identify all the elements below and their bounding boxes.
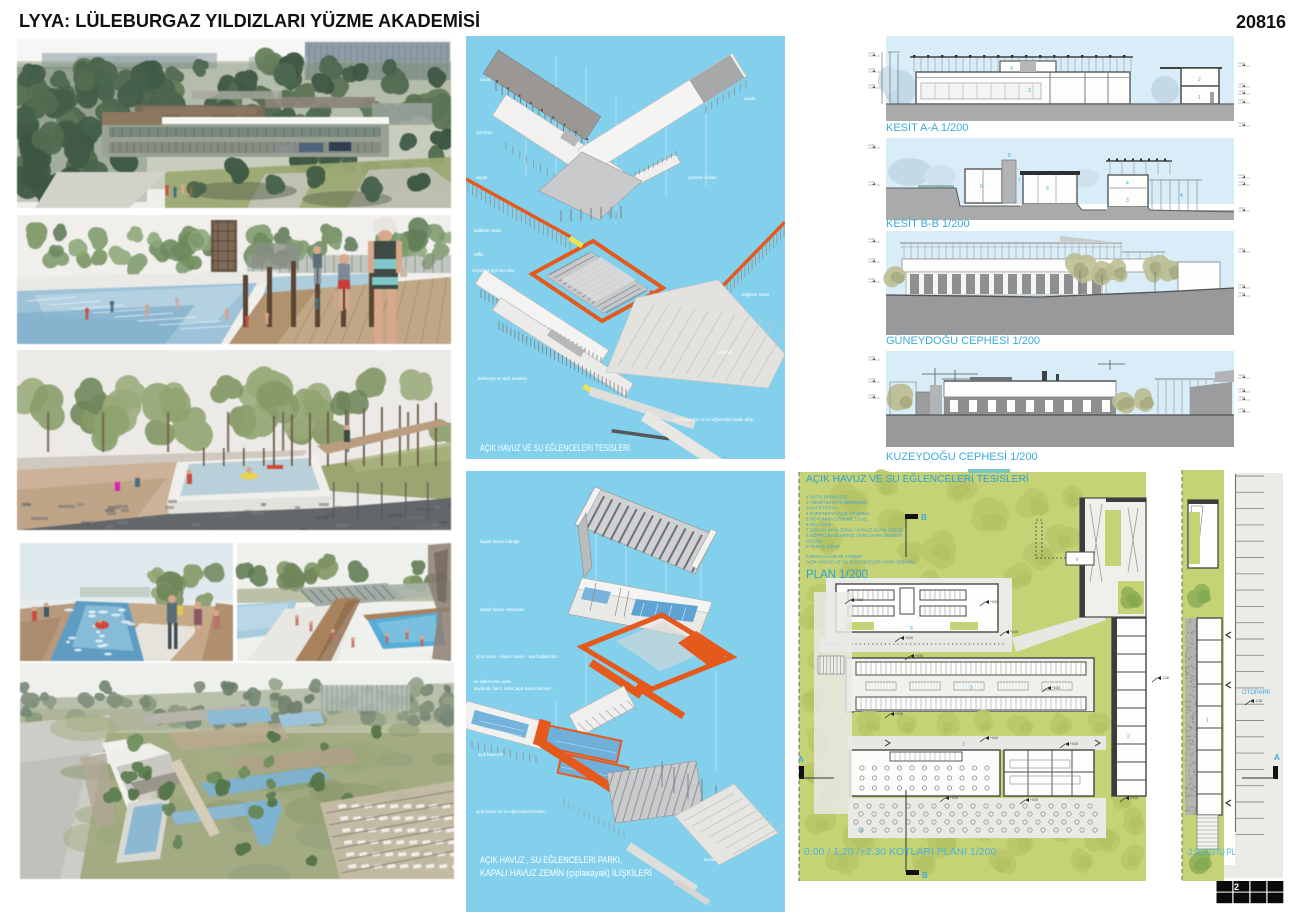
svg-text:GÜNEYDOĞU CEPHESİ 1/200: GÜNEYDOĞU CEPHESİ 1/200 <box>886 334 1040 347</box>
svg-text:-2,00: -2,00 <box>1255 699 1262 703</box>
svg-text:OTOPARK: OTOPARK <box>1242 690 1271 696</box>
svg-text:2: 2 <box>1127 734 1130 740</box>
svg-text:+5,00: +5,00 <box>868 377 875 381</box>
svg-text:1 SATIŞ BİRİMLERİ: 1 SATIŞ BİRİMLERİ <box>806 494 847 500</box>
svg-text:bağlantı rotası: bağlantı rotası <box>742 292 769 297</box>
svg-text:otopark: otopark <box>718 350 733 355</box>
svg-text:soyunma-giyinme-duş: soyunma-giyinme-duş <box>472 268 514 273</box>
svg-text:açık havuz - kapalı havuz - sp: açık havuz - kapalı havuz - spa bağlantı… <box>476 654 558 659</box>
svg-text:kaydırak, banz, küvet,açık hav: kaydırak, banz, küvet,açık hava birimler… <box>474 686 554 691</box>
svg-text:+0,00: +0,00 <box>1052 686 1060 690</box>
svg-text:+0,00: +0,00 <box>905 636 913 640</box>
svg-text:8 KÖPRÜ BAĞLANTISI / KİRLİ: 8 KÖPRÜ BAĞLANTISI / KİRLİ AYAK GEZİNTİ <box>806 532 902 538</box>
svg-text:+0,00: +0,00 <box>990 736 998 740</box>
svg-text:+5,00: +5,00 <box>868 143 875 147</box>
svg-text:+5,00: +5,00 <box>1238 395 1245 399</box>
svg-text:2 YÖNETİM OFİS BİRİMLERİ: 2 YÖNETİM OFİS BİRİMLERİ <box>806 499 867 505</box>
svg-text:+5,00: +5,00 <box>1238 173 1245 177</box>
svg-text:+5,00: +5,00 <box>1238 247 1245 251</box>
svg-text:AÇIK HAVUZ VE SU EĞLENCELERİ: AÇIK HAVUZ VE SU EĞLENCELERİ PARK 5000 M… <box>806 559 915 565</box>
svg-text:+0,00: +0,00 <box>855 598 863 602</box>
svg-text:AÇIK HAVUZ VE SU EĞLENCELERİ T: AÇIK HAVUZ VE SU EĞLENCELERİ TESİSLERİ <box>806 472 1029 485</box>
svg-text:saçak: saçak <box>744 96 756 101</box>
svg-text:saçak: saçak <box>480 77 492 82</box>
svg-text:5: 5 <box>1046 186 1049 192</box>
svg-text:+5,00: +5,00 <box>1238 89 1245 93</box>
svg-text:+5,00: +5,00 <box>1238 180 1245 184</box>
svg-text:4: 4 <box>1010 66 1013 72</box>
svg-text:raflar: raflar <box>474 252 484 257</box>
svg-text:KAPALI HAVUZ ZEMİN (çıplakaya: KAPALI HAVUZ ZEMİN (çıplakayak) İLİŞKİLE… <box>480 868 652 878</box>
svg-text:+5,00: +5,00 <box>1238 387 1245 391</box>
svg-text:+5,00: +5,00 <box>1238 82 1245 86</box>
svg-text:4: 4 <box>860 828 863 834</box>
svg-text:6 WC / DUŞ: 6 WC / DUŞ <box>806 522 831 527</box>
svg-text:5: 5 <box>970 685 973 691</box>
svg-text:+0,00: +0,00 <box>1010 630 1018 634</box>
svg-text:açık havuzlar ve su eğlenceler: açık havuzlar ve su eğlenceleri parkı gi… <box>674 417 754 422</box>
svg-text:3 KAFETERYA: 3 KAFETERYA <box>806 506 838 511</box>
svg-text:+5,00: +5,00 <box>868 277 875 281</box>
svg-text:+0,00: +0,00 <box>1030 798 1038 802</box>
svg-text:9 TERAS ÇIKIŞI: 9 TERAS ÇIKIŞI <box>806 544 840 549</box>
svg-text:2: 2 <box>1234 882 1239 892</box>
svg-text:+5,00: +5,00 <box>868 355 875 359</box>
svg-text:kapalı havuz mekanları: kapalı havuz mekanları <box>480 607 524 612</box>
svg-text:+5,00: +5,00 <box>868 51 875 55</box>
svg-text:3: 3 <box>1126 198 1129 204</box>
svg-text:6: 6 <box>980 184 983 190</box>
svg-text:3: 3 <box>962 742 965 748</box>
svg-text:AÇIK HAVUZ VE SU EĞLENCELERİ: AÇIK HAVUZ VE SU EĞLENCELERİ TESİSLERİ <box>480 443 630 453</box>
svg-text:saçak: saçak <box>476 175 488 180</box>
svg-text:PLAN 1/200: PLAN 1/200 <box>806 569 868 581</box>
svg-text:7: 7 <box>1018 178 1021 184</box>
svg-text:açık havuzlar: açık havuzlar <box>478 752 504 757</box>
svg-text:8: 8 <box>1008 153 1011 159</box>
svg-text:+5,00: +5,00 <box>868 257 875 261</box>
svg-text:+5,00: +5,00 <box>868 67 875 71</box>
svg-text:KESİT A-A 1/200: KESİT A-A 1/200 <box>886 121 968 134</box>
svg-text:GEÇİŞİ: GEÇİŞİ <box>806 538 822 544</box>
svg-text:4: 4 <box>1180 193 1183 199</box>
svg-text:+5,00: +5,00 <box>868 180 875 184</box>
svg-text:A: A <box>1274 753 1280 762</box>
svg-text:+5,00: +5,00 <box>1238 61 1245 65</box>
svg-text:kafeterya ve açık terasları: kafeterya ve açık terasları <box>478 376 527 381</box>
svg-text:+5,00: +5,00 <box>868 237 875 241</box>
svg-text:KAPALI ALANLAR 1200M2: KAPALI ALANLAR 1200M2 <box>806 554 862 559</box>
svg-text:kapalı havuz kabuğu: kapalı havuz kabuğu <box>480 539 520 544</box>
svg-text:+5,00: +5,00 <box>1238 407 1245 411</box>
svg-text:+5,00: +5,00 <box>868 393 875 397</box>
svg-text:+5,00: +5,00 <box>1238 373 1245 377</box>
svg-text:+5,00: +5,00 <box>1238 283 1245 287</box>
svg-text:B: B <box>922 871 928 880</box>
svg-text:+0,00: +0,00 <box>1070 742 1078 746</box>
svg-text:0.00 / 1.20 /+2.30 KOTLARI PL: 0.00 / 1.20 /+2.30 KOTLARI PLANI 1/200 <box>804 846 996 858</box>
svg-text:su eğlenceleri parkı: su eğlenceleri parkı <box>474 679 511 684</box>
svg-text:2: 2 <box>1198 77 1201 83</box>
svg-text:4 KAFETERYA AÇIK OTURMA: 4 KAFETERYA AÇIK OTURMA <box>806 511 870 516</box>
svg-text:+0,00: +0,00 <box>915 654 923 658</box>
svg-text:A: A <box>798 755 804 764</box>
svg-text:-2,30: -2,30 <box>1162 676 1169 680</box>
svg-text:açık havuz ve su eğlenceleri t: açık havuz ve su eğlenceleri tesisleri <box>476 809 546 814</box>
svg-text:durak: durak <box>704 857 716 862</box>
svg-text:+0,00: +0,00 <box>990 600 998 604</box>
svg-text:+5,00: +5,00 <box>1238 206 1245 210</box>
svg-text:yüzerim alıkları: yüzerim alıkları <box>688 175 717 180</box>
svg-text:+5,00: +5,00 <box>1238 98 1245 102</box>
svg-text:1: 1 <box>1206 718 1209 724</box>
svg-text:üst teras: üst teras <box>476 130 492 135</box>
svg-text:+5,00: +5,00 <box>1238 291 1245 295</box>
svg-text:6: 6 <box>910 626 913 632</box>
svg-text:7 ÇIPLAK AYAK ZONU / HAVUZ AL: 7 ÇIPLAK AYAK ZONU / HAVUZ ALANI GEÇİŞİ <box>806 527 903 533</box>
svg-text:5 SOYUNMA GİYİNME / DUŞ: 5 SOYUNMA GİYİNME / DUŞ <box>806 516 867 522</box>
svg-text:+5,00: +5,00 <box>868 83 875 87</box>
svg-text:bağlantı rotası: bağlantı rotası <box>474 228 501 233</box>
svg-text:+0,00: +0,00 <box>950 796 958 800</box>
svg-text:B: B <box>921 513 927 522</box>
svg-text:4: 4 <box>1126 181 1129 187</box>
svg-text:+5,00: +5,00 <box>1238 121 1245 125</box>
svg-text:+0,00: +0,00 <box>895 712 903 716</box>
svg-text:AÇIK HAVUZ , SU EĞLENCELERİ PA: AÇIK HAVUZ , SU EĞLENCELERİ PARKI, <box>480 855 622 865</box>
svg-text:3: 3 <box>1028 88 1031 94</box>
svg-text:1: 1 <box>1198 95 1201 101</box>
svg-text:KESİT B-B 1/200: KESİT B-B 1/200 <box>886 217 970 230</box>
svg-text:+0,00: +0,00 <box>1130 796 1138 800</box>
